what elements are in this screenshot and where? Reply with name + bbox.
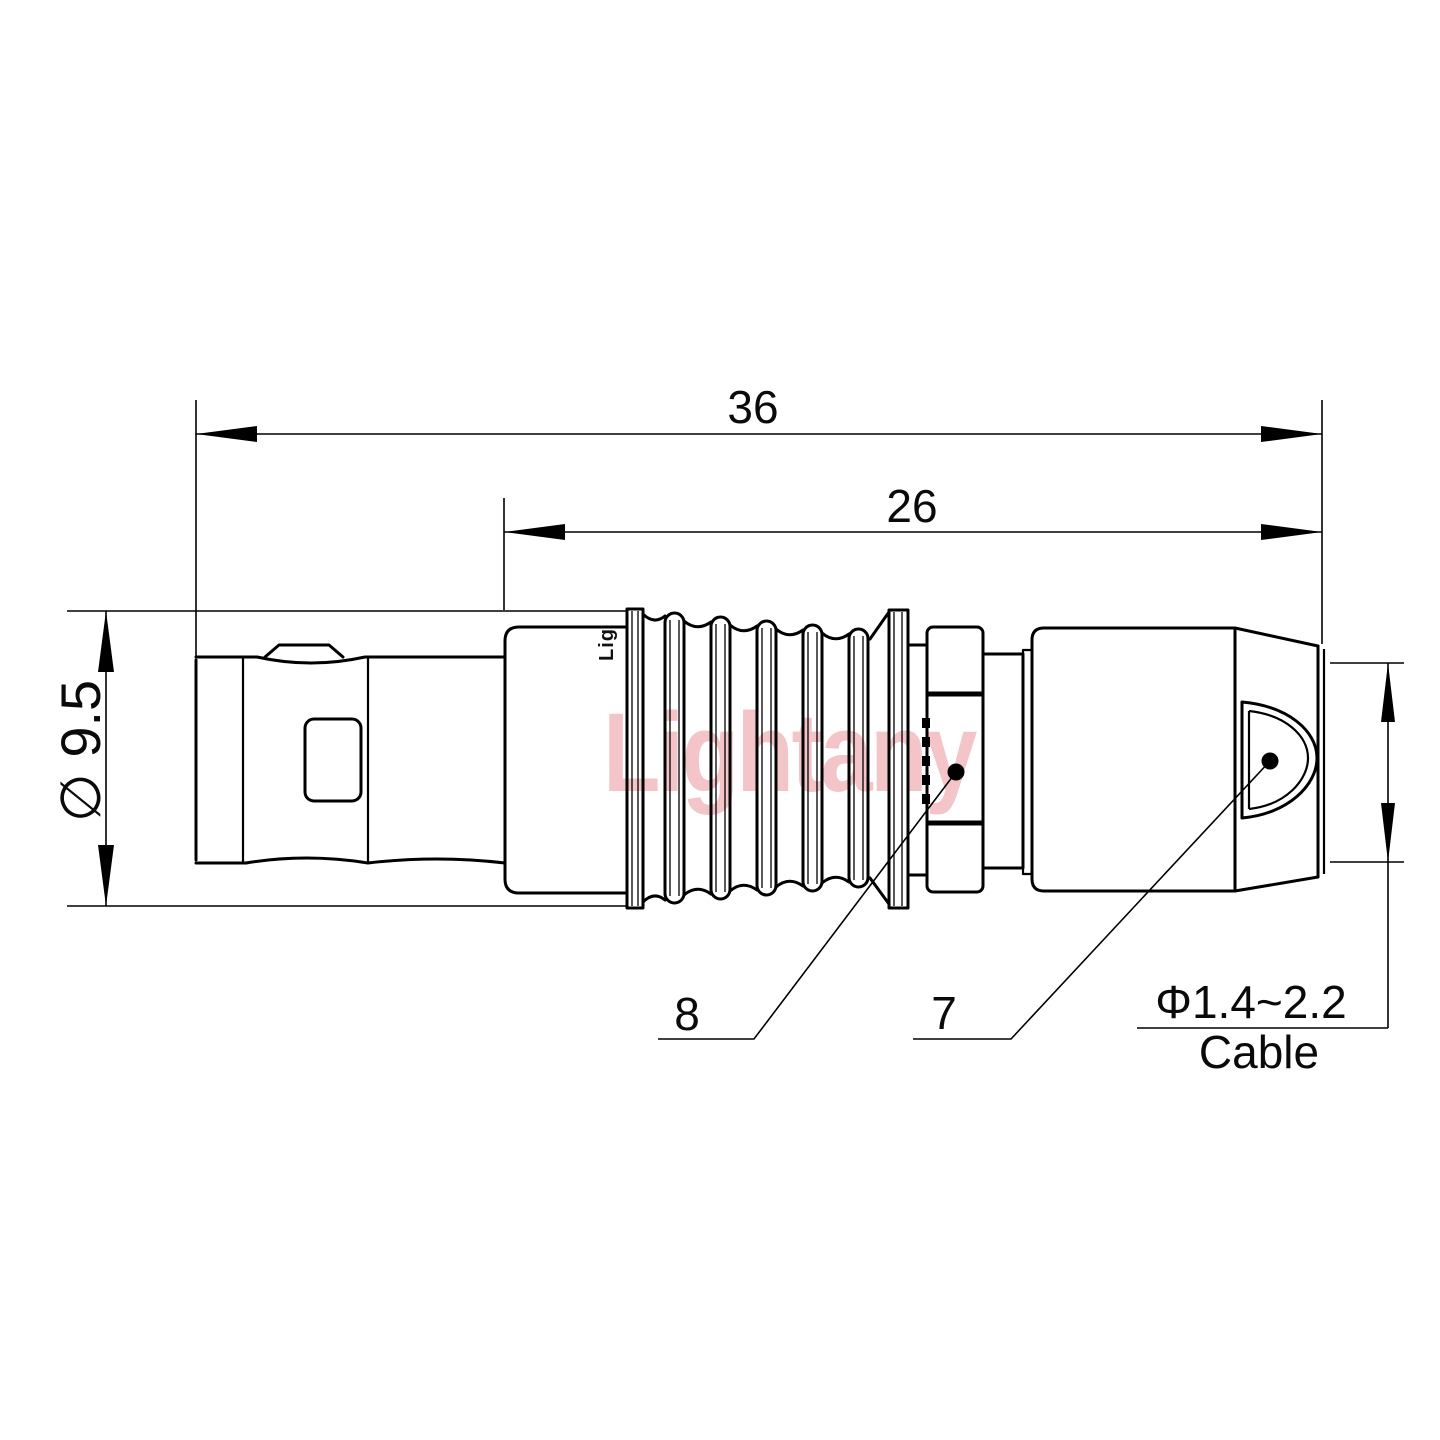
nut-groove-lines xyxy=(927,694,983,823)
bellows-ridge xyxy=(803,625,822,891)
bellows-ridge xyxy=(849,629,868,887)
dia-9-5-label: ∅ 9.5 xyxy=(49,680,112,822)
coupling-nut xyxy=(926,627,983,892)
bellows-ridge xyxy=(757,621,776,895)
rear-body-shell xyxy=(1032,628,1235,891)
dim-26-label: 26 xyxy=(886,480,937,532)
leader-dot-7 xyxy=(1262,753,1279,770)
callout-8: 8 xyxy=(658,764,965,1041)
technical-drawing-canvas: Lightany xyxy=(0,0,1440,1440)
bellows-ridge-inner-lines xyxy=(670,620,863,896)
neck xyxy=(983,654,1023,868)
dim-36-arrow-left xyxy=(196,426,257,442)
front-barrel xyxy=(196,645,505,863)
cable-arrow-top xyxy=(1381,663,1395,722)
dim-36-arrow-right xyxy=(1261,426,1322,442)
cable-arrow-bottom xyxy=(1381,803,1395,862)
coupling-nut-outline xyxy=(927,627,983,892)
front-barrel-bottom-edge xyxy=(246,858,505,863)
body-marking-text: Lig xyxy=(596,628,618,661)
bellows-ridge xyxy=(711,617,730,899)
dia-9-5-arrow-bottom xyxy=(98,845,114,906)
dim-36-label: 36 xyxy=(727,381,778,433)
leader-line-8 xyxy=(658,772,956,1039)
part-label-8: 8 xyxy=(674,988,700,1040)
rear-flange-outline xyxy=(889,610,908,908)
cable-entry-opening xyxy=(1242,702,1317,818)
bellows-ridge xyxy=(665,613,684,903)
bellows-front-flange xyxy=(627,609,643,908)
key-bump xyxy=(265,645,343,657)
bellows-rear-flange xyxy=(889,610,908,908)
part-label-7: 7 xyxy=(931,987,957,1039)
rear-flange-inner-lines xyxy=(894,612,902,906)
mid-body xyxy=(505,627,627,893)
front-flange-inner-lines xyxy=(632,611,638,906)
leader-dot-8 xyxy=(948,764,965,781)
dimension-diameter-9-5: ∅ 9.5 xyxy=(49,611,627,906)
connector-outline xyxy=(196,609,1324,908)
front-flange-outline xyxy=(627,609,643,908)
front-barrel-top-edge xyxy=(257,657,505,663)
dim-26-arrow-right xyxy=(1261,524,1322,540)
dimension-cable: Φ1.4~2.2 Cable xyxy=(1137,663,1404,1078)
dia-9-5-arrow-top xyxy=(98,611,114,672)
rear-body xyxy=(1032,628,1324,891)
front-barrel-left-edge xyxy=(196,657,257,863)
mid-body-shell xyxy=(505,627,627,893)
latch-window xyxy=(305,719,361,801)
dim-26-arrow-left xyxy=(504,524,565,540)
cable-caption-label: Cable xyxy=(1199,1026,1319,1078)
dimension-36: 36 xyxy=(196,381,1322,657)
bellows xyxy=(643,612,889,904)
dimension-26: 26 xyxy=(504,480,1322,610)
connector-drawing: 36 26 ∅ 9.5 Φ1.4~2.2 Cable xyxy=(0,0,1440,1440)
cable-range-label: Φ1.4~2.2 xyxy=(1155,976,1346,1028)
